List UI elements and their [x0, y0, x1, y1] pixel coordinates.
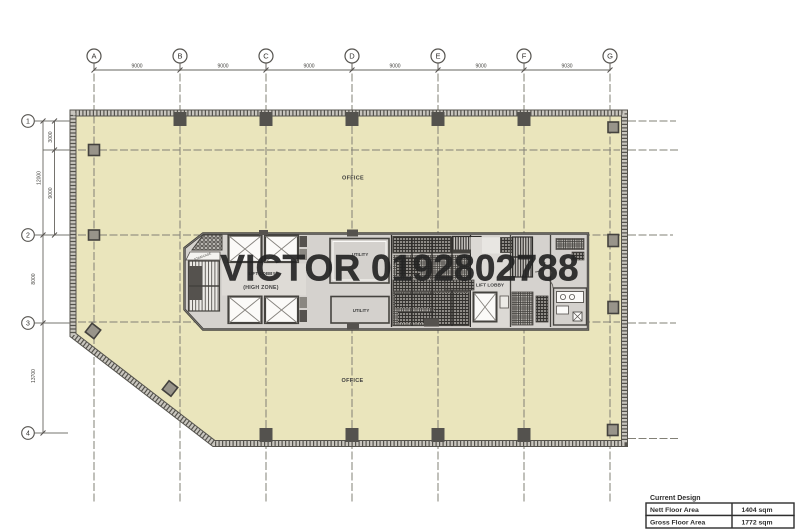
svg-text:4: 4 [26, 431, 30, 438]
svg-text:9030: 9030 [561, 64, 572, 70]
svg-text:OFFICE: OFFICE [342, 175, 364, 181]
svg-text:A: A [91, 52, 96, 61]
svg-text:9000: 9000 [475, 64, 486, 70]
svg-text:9000: 9000 [48, 187, 54, 198]
svg-text:1772 sqm: 1772 sqm [742, 520, 773, 527]
svg-text:F: F [522, 52, 527, 61]
svg-text:13700: 13700 [31, 369, 37, 383]
svg-text:9000: 9000 [131, 64, 142, 70]
svg-text:1404 sqm: 1404 sqm [742, 507, 773, 514]
svg-text:Current Design: Current Design [650, 495, 701, 502]
svg-text:E: E [435, 52, 440, 61]
svg-text:B: B [177, 52, 182, 61]
svg-text:UTILITY: UTILITY [353, 308, 370, 313]
svg-text:Gross Floor Area: Gross Floor Area [650, 520, 705, 527]
svg-text:C: C [263, 52, 269, 61]
svg-text:1: 1 [26, 119, 30, 126]
svg-text:3: 3 [26, 321, 30, 328]
svg-text:9000: 9000 [217, 64, 228, 70]
svg-text:VICTOR 0192802788: VICTOR 0192802788 [220, 247, 579, 288]
svg-text:2: 2 [26, 233, 30, 240]
svg-text:3000: 3000 [48, 131, 54, 142]
svg-text:9000: 9000 [303, 64, 314, 70]
svg-text:OFFICE: OFFICE [342, 378, 364, 384]
svg-text:Nett Floor Area: Nett Floor Area [650, 507, 699, 514]
svg-text:12000: 12000 [37, 171, 43, 185]
svg-text:D: D [349, 52, 355, 61]
svg-text:G: G [607, 52, 613, 61]
svg-text:9000: 9000 [389, 64, 400, 70]
svg-text:8000: 8000 [31, 273, 37, 284]
